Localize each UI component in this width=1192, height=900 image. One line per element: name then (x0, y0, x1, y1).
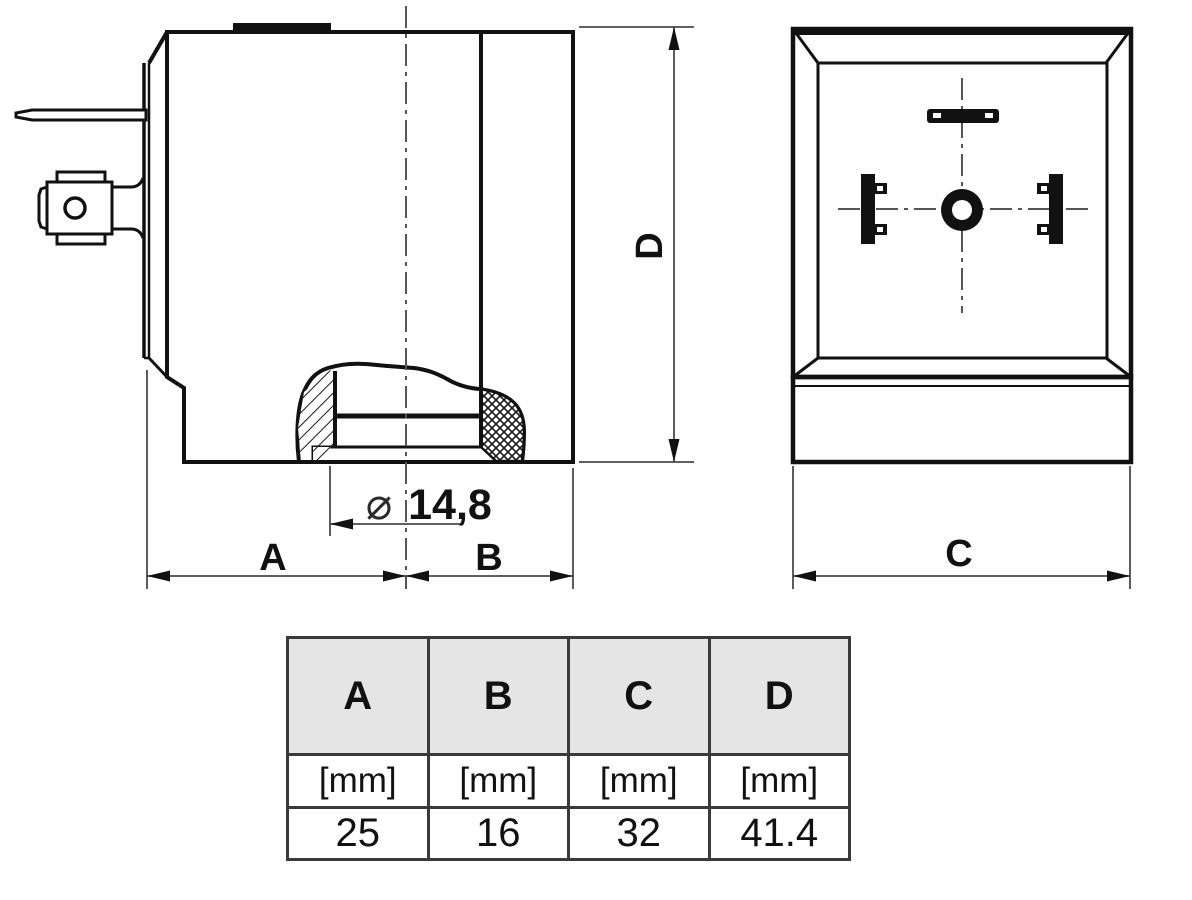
dimension-label-d: D (629, 232, 671, 259)
arrow-diameter (330, 519, 353, 530)
terminal-hole (65, 198, 85, 218)
dimension-label-a: A (259, 537, 286, 579)
dimension-label-c: C (945, 533, 972, 575)
table-unit-c: [mm] (569, 755, 710, 808)
hatch-right-wall (479, 389, 524, 461)
arrow-c-right (1107, 571, 1130, 582)
body-chamfer-bottom (149, 358, 167, 377)
arrow-b-left (406, 571, 429, 582)
arrow-a-left (147, 571, 170, 582)
table-unit-row: [mm] [mm] [mm] [mm] (288, 755, 850, 808)
table-header-d: D (709, 638, 850, 755)
terminal-bar-slot-right (985, 113, 993, 118)
dimension-label-b: B (475, 537, 502, 579)
table-value-b: 16 (428, 808, 569, 860)
spade-terminal (39, 172, 143, 244)
table-unit-d: [mm] (709, 755, 850, 808)
dimension-table: A B C D [mm] [mm] [mm] [mm] 25 16 32 41.… (286, 636, 851, 861)
center-ring (941, 189, 983, 231)
table-value-c: 32 (569, 808, 710, 860)
table-unit-b: [mm] (428, 755, 569, 808)
table-header-c: C (569, 638, 710, 755)
body-chamfer-top (149, 32, 167, 63)
arrow-a-right (383, 571, 406, 582)
terminal-neck-top (112, 178, 143, 187)
core-section (184, 364, 573, 462)
arrow-d-top (669, 27, 680, 50)
table-value-d: 41.4 (709, 808, 850, 860)
terminal-bar-top-view (927, 109, 999, 123)
arrow-c-left (793, 571, 816, 582)
table-header-b: B (428, 638, 569, 755)
arrow-d-bottom (669, 439, 680, 462)
front-view (791, 29, 1133, 462)
side-view (16, 23, 573, 462)
terminal-bar-slot-left (933, 113, 941, 118)
table-header-a: A (288, 638, 429, 755)
table-header-row: A B C D (288, 638, 850, 755)
terminal-neck-bottom (112, 229, 143, 238)
table-value-a: 25 (288, 808, 429, 860)
connector-pin (16, 110, 146, 120)
diameter-value: 14,8 (408, 481, 492, 529)
diameter-symbol: ⌀ (366, 480, 393, 529)
arrow-b-right (550, 571, 573, 582)
technical-drawing-page: A B D ⌀ 14,8 (0, 0, 1192, 900)
table-value-row: 25 16 32 41.4 (288, 808, 850, 860)
tube-flange (313, 447, 503, 462)
table-unit-a: [mm] (288, 755, 429, 808)
front-lower-band (793, 377, 1131, 462)
